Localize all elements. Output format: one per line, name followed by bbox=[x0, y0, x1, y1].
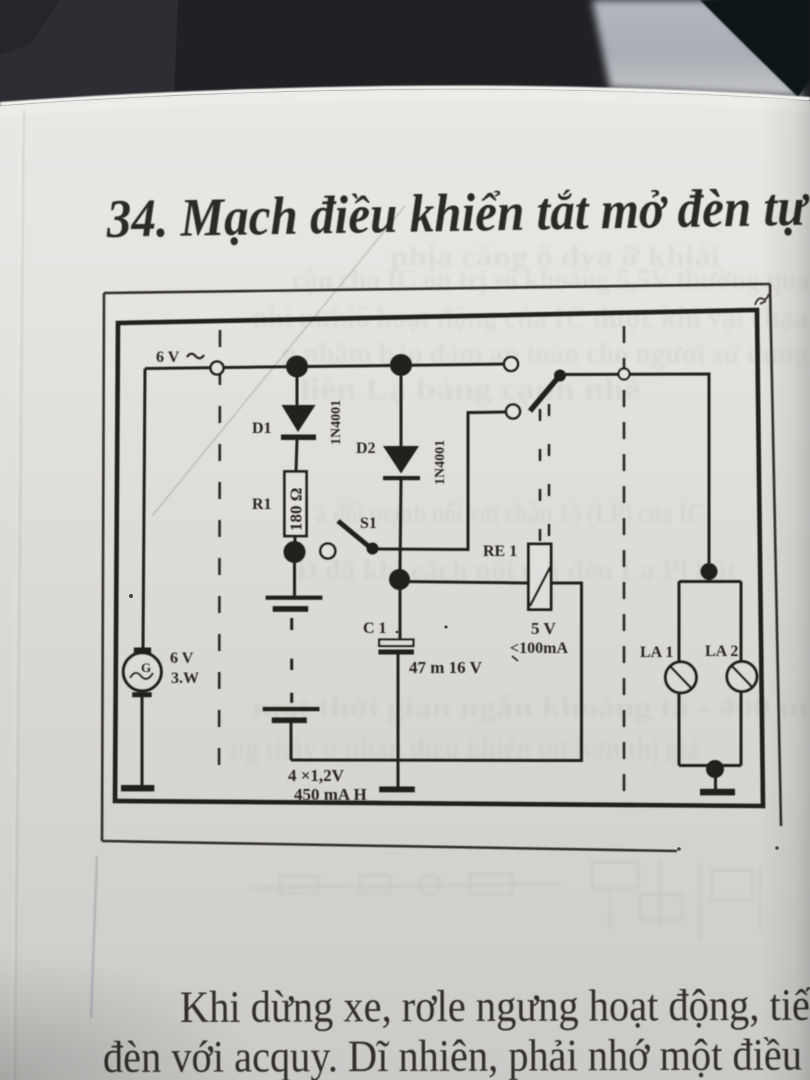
svg-text:cận cho IC ỏn trị số khoảng 5,: cận cho IC ỏn trị số khoảng 5,5V thường … bbox=[292, 263, 810, 296]
svg-text:34. Mạch điều khiển tắt mở đèn: 34. Mạch điều khiển tắt mở đèn tự bbox=[105, 177, 810, 249]
